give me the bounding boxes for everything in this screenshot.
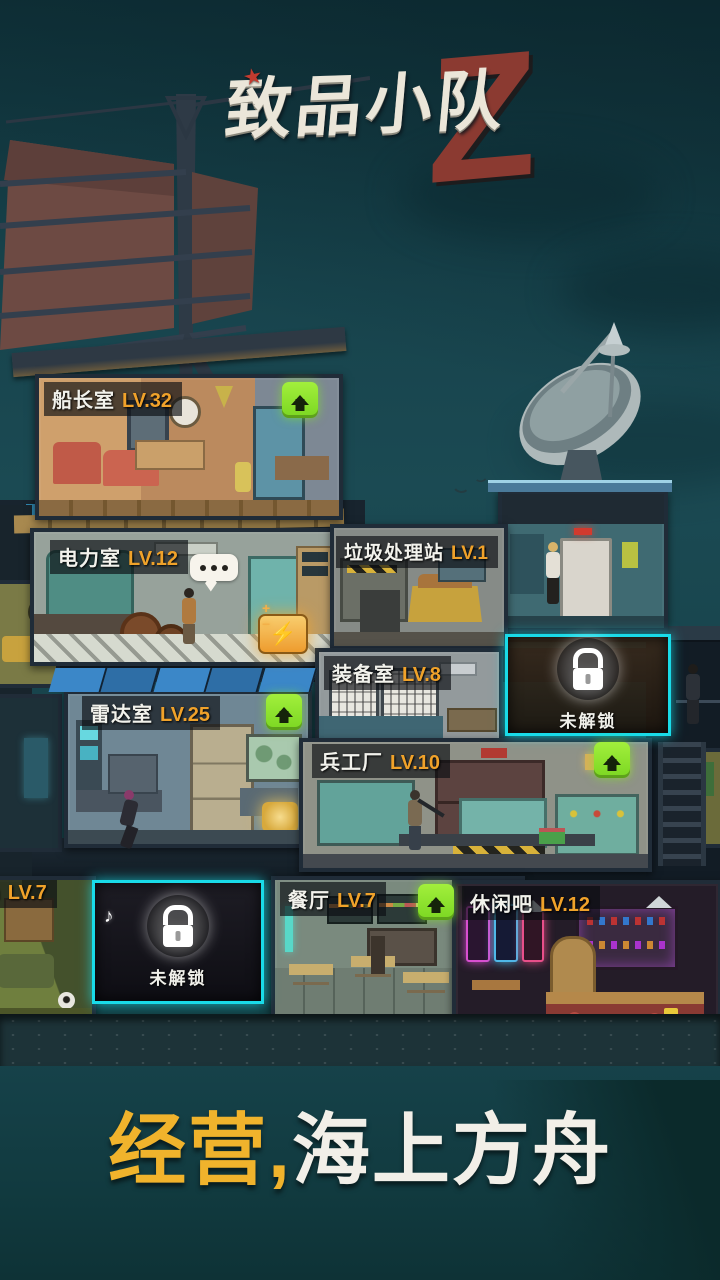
- desk: [275, 456, 329, 480]
- room-label-restaurant: 餐厅LV.7: [280, 882, 386, 916]
- screen: [80, 746, 98, 760]
- room-level: LV.32: [122, 390, 172, 412]
- tagline-highlight: 经营,: [108, 1106, 292, 1194]
- warning-sign: [481, 748, 507, 758]
- soccer-ball: [58, 992, 75, 1009]
- room-name: 电力室: [58, 548, 121, 570]
- game-title: 致品小队: [223, 67, 510, 143]
- wall-map: [246, 734, 302, 782]
- trash-bin: [408, 586, 482, 622]
- room-label-bar: 休闲吧LV.12: [462, 886, 600, 920]
- bird-icon: [452, 483, 471, 494]
- room-name: 船长室: [52, 390, 115, 412]
- room-floor: [334, 632, 504, 646]
- equipment-pile: [0, 954, 54, 988]
- room-name: 装备室: [332, 664, 395, 686]
- plus-minus: + −: [262, 600, 306, 632]
- console: [108, 754, 158, 794]
- door: [190, 724, 254, 834]
- title-star-icon: ★: [241, 62, 266, 92]
- character-crew: [546, 542, 560, 604]
- room-label-equipment: 装备室LV.8: [324, 656, 451, 690]
- room-name: 兵工厂: [320, 752, 383, 774]
- character-climber: [122, 790, 136, 848]
- room-label-captain: 船长室LV.32: [44, 382, 182, 416]
- lock-icon: [557, 638, 619, 700]
- upgrade-arrow-icon[interactable]: [266, 694, 302, 730]
- cloud: [560, 250, 720, 330]
- upgrade-arrow-icon[interactable]: [418, 884, 454, 920]
- room-name: 雷达室: [90, 704, 153, 726]
- battery-energy-icon[interactable]: + − ⚡: [258, 614, 308, 654]
- room-label-gym: mLV.7: [0, 880, 57, 908]
- panel: [510, 534, 544, 594]
- room-locked-2[interactable]: 未解锁: [92, 880, 264, 1004]
- room-locked-1[interactable]: 未解锁: [505, 634, 671, 736]
- character-deckhand: [686, 664, 700, 724]
- room-level: LV.7: [337, 890, 376, 912]
- room-label-arsenal: 兵工厂LV.10: [312, 744, 450, 778]
- sofa: [53, 442, 101, 484]
- chair: [235, 462, 251, 492]
- speech-bubble[interactable]: [190, 554, 238, 581]
- room-label-radar: 雷达室LV.25: [82, 696, 220, 730]
- room-level: LV.10: [390, 752, 440, 774]
- ladder[interactable]: [658, 742, 706, 866]
- conveyor: [399, 834, 595, 846]
- room-floor: [303, 854, 648, 868]
- locked-label: 未解锁: [560, 707, 617, 732]
- character-gunner: [408, 790, 422, 850]
- room-floor: [68, 830, 308, 844]
- chandelier: [209, 386, 239, 408]
- game-screen: Z 致品小队 ★: [0, 0, 720, 1280]
- bird-icon: [473, 474, 488, 483]
- music-note-icon: ♪: [104, 906, 114, 928]
- monitor-stack: [76, 720, 102, 794]
- room-ceiling: [502, 494, 664, 524]
- room-label-power: 电力室LV.12: [50, 540, 188, 574]
- panel-screen: [302, 566, 328, 576]
- room-floor: [502, 616, 664, 628]
- room-level: LV.7: [8, 882, 47, 904]
- left-partial-room: [0, 694, 62, 852]
- sign: [622, 542, 638, 568]
- dining-table: [289, 964, 333, 975]
- room-level: LV.25: [160, 704, 210, 726]
- console: [555, 794, 639, 856]
- saloon-door: [550, 936, 596, 998]
- satellite-dish: [492, 322, 682, 502]
- crates: [360, 590, 400, 634]
- room-floor: [39, 500, 339, 516]
- table: [472, 980, 520, 990]
- upgrade-arrow-icon[interactable]: [594, 742, 630, 778]
- room-level: LV.12: [128, 548, 178, 570]
- room-name: 休闲吧: [470, 894, 533, 916]
- room-roof: [488, 480, 672, 492]
- ship-hull: [0, 1014, 720, 1066]
- character-worker: [182, 588, 196, 644]
- awning: [52, 668, 314, 692]
- room-satellite[interactable]: [498, 490, 668, 632]
- panel-screen: [302, 552, 328, 562]
- table: [135, 440, 205, 470]
- dining-table: [403, 972, 449, 983]
- room-name: 餐厅: [288, 890, 330, 912]
- bottles: [587, 941, 667, 949]
- lock-icon: [147, 895, 209, 957]
- sandwich-stack: [539, 828, 565, 844]
- figure-silhouette: [371, 936, 385, 974]
- room-level: LV.12: [540, 894, 590, 916]
- room-name: m: [0, 882, 1, 904]
- upgrade-arrow-icon[interactable]: [282, 382, 318, 418]
- room-level: LV.1: [451, 543, 488, 564]
- bench: [447, 708, 497, 732]
- glow-item[interactable]: [262, 802, 298, 832]
- room-label-garbage: 垃圾处理站LV.1: [336, 536, 498, 568]
- door: [560, 538, 612, 624]
- room-name: 垃圾处理站: [344, 543, 444, 564]
- door: [253, 406, 305, 500]
- cabinet: [319, 716, 443, 740]
- glow-window: [24, 738, 48, 798]
- hanging-lamp: [646, 896, 672, 908]
- locked-label: 未解锁: [150, 964, 207, 989]
- alarm-light: [574, 528, 592, 535]
- room-level: LV.8: [402, 664, 441, 686]
- tagline-rest: 海上方舟: [292, 1106, 612, 1194]
- tagline: 经营,海上方舟: [0, 1088, 720, 1200]
